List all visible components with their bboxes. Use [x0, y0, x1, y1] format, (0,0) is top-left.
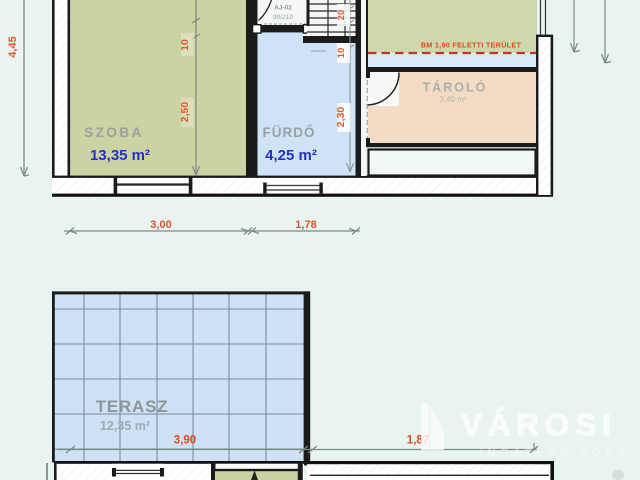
svg-text:20: 20 [336, 10, 347, 21]
svg-text:AJ-02: AJ-02 [274, 5, 292, 12]
svg-text:3,40 m²: 3,40 m² [439, 95, 466, 104]
svg-text:3,90: 3,90 [174, 435, 196, 447]
svg-text:4,45: 4,45 [7, 36, 19, 57]
svg-text:10: 10 [336, 48, 347, 59]
svg-text:2,50: 2,50 [179, 102, 191, 123]
svg-text:12,35 m²: 12,35 m² [100, 419, 150, 433]
svg-text:90/210: 90/210 [273, 14, 293, 21]
svg-text:BM 1,90 FELETTI TERÜLET: BM 1,90 FELETTI TERÜLET [421, 41, 522, 50]
svg-text:TERASZ: TERASZ [96, 397, 169, 416]
svg-text:TÁROLÓ: TÁROLÓ [423, 80, 488, 95]
svg-text:1,78: 1,78 [295, 219, 316, 231]
svg-text:4,25 m²: 4,25 m² [265, 147, 317, 164]
svg-text:INGATLANIRODA: INGATLANIRODA [480, 447, 630, 459]
svg-text:10: 10 [179, 39, 191, 51]
svg-text:2,30: 2,30 [335, 107, 347, 128]
svg-text:3,00: 3,00 [150, 219, 171, 231]
svg-text:VÁROSI: VÁROSI [461, 407, 617, 443]
svg-text:SZOBA: SZOBA [84, 125, 144, 140]
svg-text:FÜRDŐ: FÜRDŐ [263, 125, 316, 140]
svg-text:13,35 m²: 13,35 m² [90, 147, 150, 164]
